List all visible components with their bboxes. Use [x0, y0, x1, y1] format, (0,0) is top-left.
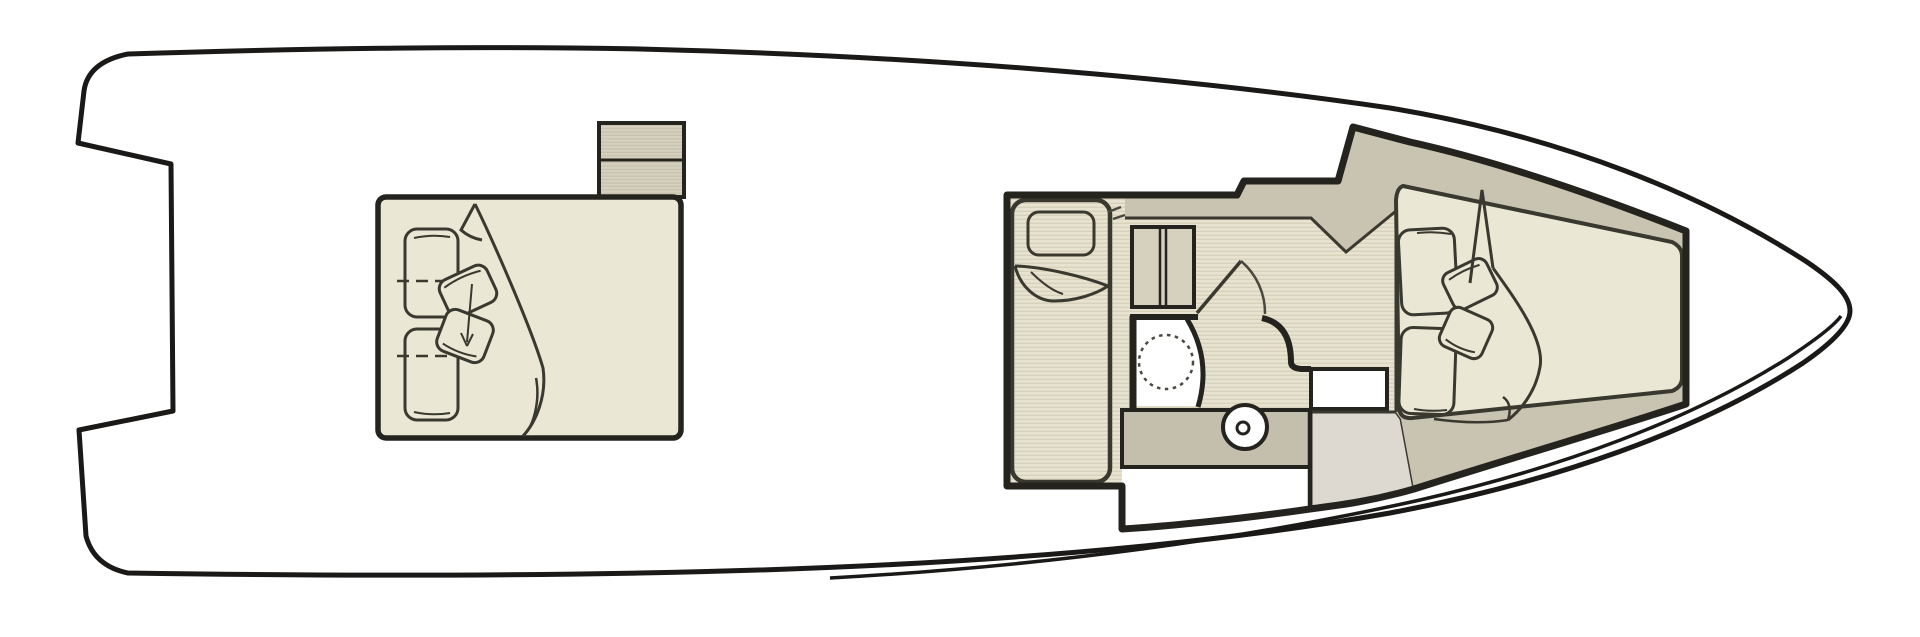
- guest-berth-compartment: [1012, 200, 1125, 482]
- hatch-box: [1311, 369, 1387, 409]
- companionway-steps: [599, 123, 684, 197]
- floor-plan-canvas: [0, 0, 1920, 637]
- midship-cabin: [378, 197, 681, 438]
- wardrobe-body: [1132, 227, 1194, 307]
- sink-drain: [1237, 422, 1249, 434]
- wardrobe: [1132, 227, 1194, 307]
- vanity-counter: [1122, 410, 1310, 467]
- floor-plan-drawing: [0, 0, 1920, 637]
